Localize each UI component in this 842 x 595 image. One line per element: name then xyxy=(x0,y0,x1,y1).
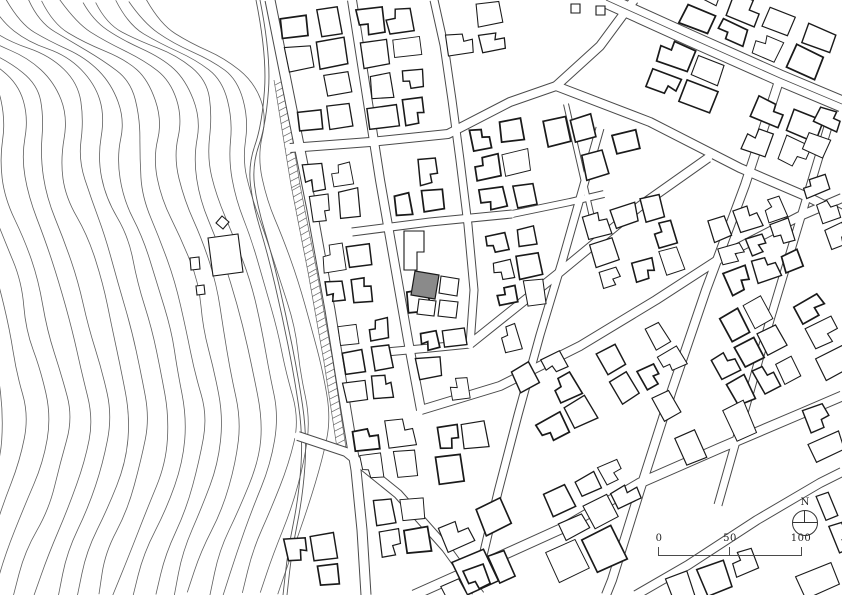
building-footprint xyxy=(385,7,414,34)
building-footprint xyxy=(719,308,750,342)
hill-shed-2 xyxy=(196,285,205,295)
building-footprint xyxy=(659,246,685,276)
building-footprint xyxy=(543,484,576,517)
building-footprint xyxy=(442,328,467,348)
building-footprint xyxy=(435,454,464,485)
building-footprint xyxy=(574,471,601,497)
building-footprint xyxy=(808,431,842,463)
building-footprint xyxy=(449,377,470,401)
building-block xyxy=(389,157,445,217)
building-footprint xyxy=(687,0,723,6)
building-footprint xyxy=(542,116,572,147)
building-footprint xyxy=(284,536,308,562)
building-footprint xyxy=(317,7,342,37)
neighbor-tall-L xyxy=(404,231,424,270)
building-footprint xyxy=(513,183,537,209)
building-footprint xyxy=(711,349,741,380)
building-block xyxy=(352,417,421,484)
building-footprint xyxy=(284,44,314,72)
building-block xyxy=(795,401,842,463)
building-footprint xyxy=(570,114,597,142)
building-footprint xyxy=(597,458,625,485)
north-arrow: N xyxy=(780,497,830,559)
building-footprint xyxy=(360,453,384,480)
building-footprint xyxy=(523,277,547,306)
building-footprint xyxy=(343,380,368,403)
building-footprint xyxy=(415,355,442,380)
building-footprint xyxy=(824,222,842,249)
building-footprint xyxy=(371,373,394,400)
building-footprint xyxy=(478,32,505,53)
building-footprint xyxy=(599,267,622,289)
building-footprint xyxy=(639,193,665,222)
hill-shed-1 xyxy=(190,257,200,270)
site-building xyxy=(411,271,439,299)
building-footprint xyxy=(297,109,323,132)
building-footprint xyxy=(445,31,474,56)
building-footprint xyxy=(609,371,640,405)
neighbor-east xyxy=(439,276,459,296)
building-footprint xyxy=(337,188,362,219)
building-footprint xyxy=(485,232,509,253)
building-footprint xyxy=(762,7,795,37)
building-footprint xyxy=(392,36,422,58)
building-footprint xyxy=(750,96,786,128)
building-footprint xyxy=(402,68,425,89)
building-footprint xyxy=(741,125,774,158)
building-block xyxy=(695,296,802,410)
building-block xyxy=(672,400,759,466)
building-footprint xyxy=(469,127,491,151)
building-block xyxy=(581,192,685,293)
building-footprint xyxy=(421,188,445,212)
building-footprint xyxy=(499,323,522,353)
building-block xyxy=(468,118,538,214)
map-drawing xyxy=(0,0,842,595)
building-footprint xyxy=(498,118,524,143)
building-footprint xyxy=(474,498,511,536)
building-footprint xyxy=(338,324,359,346)
scale-label-50: 50 xyxy=(723,533,737,544)
building-footprint xyxy=(492,259,514,281)
neighbor-south-1 xyxy=(417,299,436,316)
building-block xyxy=(334,318,398,404)
building-block xyxy=(431,420,493,484)
building-footprint xyxy=(545,538,589,582)
building-footprint xyxy=(404,526,432,554)
building-block xyxy=(612,130,640,155)
building-block xyxy=(796,563,840,595)
building-footprint xyxy=(697,559,734,595)
site-plan-map: 0 50 100 N xyxy=(0,0,842,595)
building-footprint xyxy=(367,104,400,129)
building-footprint xyxy=(829,521,842,553)
building-footprint xyxy=(352,428,380,453)
building-footprint xyxy=(645,321,671,350)
building-footprint xyxy=(437,424,460,449)
building-footprint xyxy=(280,15,309,39)
building-block xyxy=(284,532,341,591)
building-footprint xyxy=(373,498,396,526)
building-footprint xyxy=(461,421,489,450)
building-footprint xyxy=(516,252,543,279)
building-footprint xyxy=(351,277,373,304)
building-footprint xyxy=(723,265,753,296)
building-block xyxy=(485,226,548,312)
building-footprint xyxy=(371,344,393,371)
building-footprint xyxy=(637,363,663,390)
building-footprint xyxy=(310,532,338,561)
building-footprint xyxy=(496,285,518,305)
building-footprint xyxy=(796,563,840,595)
building-footprint xyxy=(342,349,365,374)
building-footprint xyxy=(502,149,532,177)
building-footprint xyxy=(317,563,340,586)
building-footprint xyxy=(400,496,426,521)
building-block xyxy=(442,1,507,58)
building-footprint xyxy=(596,344,626,375)
building-footprint xyxy=(475,1,503,27)
field-shed-2 xyxy=(596,6,605,15)
field-shed-1 xyxy=(571,4,580,13)
building-footprint xyxy=(330,162,353,187)
building-footprint xyxy=(775,356,802,384)
building-footprint xyxy=(368,318,390,341)
hill-shed-3 xyxy=(216,216,229,229)
building-footprint xyxy=(324,72,352,97)
stream xyxy=(250,0,306,595)
building-footprint xyxy=(479,186,508,212)
building-footprint xyxy=(394,193,413,217)
building-footprint xyxy=(612,130,640,155)
building-footprint xyxy=(346,244,372,268)
building-footprint xyxy=(631,257,657,282)
building-footprint xyxy=(652,389,681,421)
building-footprint xyxy=(360,39,390,68)
building-block xyxy=(499,323,522,353)
building-footprint xyxy=(379,529,403,558)
building-footprint xyxy=(327,103,353,130)
building-footprint xyxy=(393,449,418,479)
building-footprint xyxy=(369,73,394,101)
building-footprint xyxy=(417,157,439,186)
site-building-highlight xyxy=(411,271,439,299)
building-footprint xyxy=(678,79,718,113)
building-footprint xyxy=(646,68,682,98)
building-footprint xyxy=(402,97,425,126)
hill-building-large xyxy=(208,234,243,276)
north-label: N xyxy=(780,497,830,509)
building-footprint xyxy=(316,37,348,69)
building-footprint xyxy=(309,194,331,223)
building-footprint xyxy=(385,417,417,449)
scale-label-0: 0 xyxy=(656,533,663,544)
building-footprint xyxy=(652,220,677,249)
building-footprint xyxy=(750,253,781,284)
neighbor-south-2 xyxy=(438,300,458,318)
building-footprint xyxy=(516,226,537,247)
building-footprint xyxy=(536,412,571,445)
north-circle-icon xyxy=(792,510,818,536)
building-footprint xyxy=(473,154,502,181)
